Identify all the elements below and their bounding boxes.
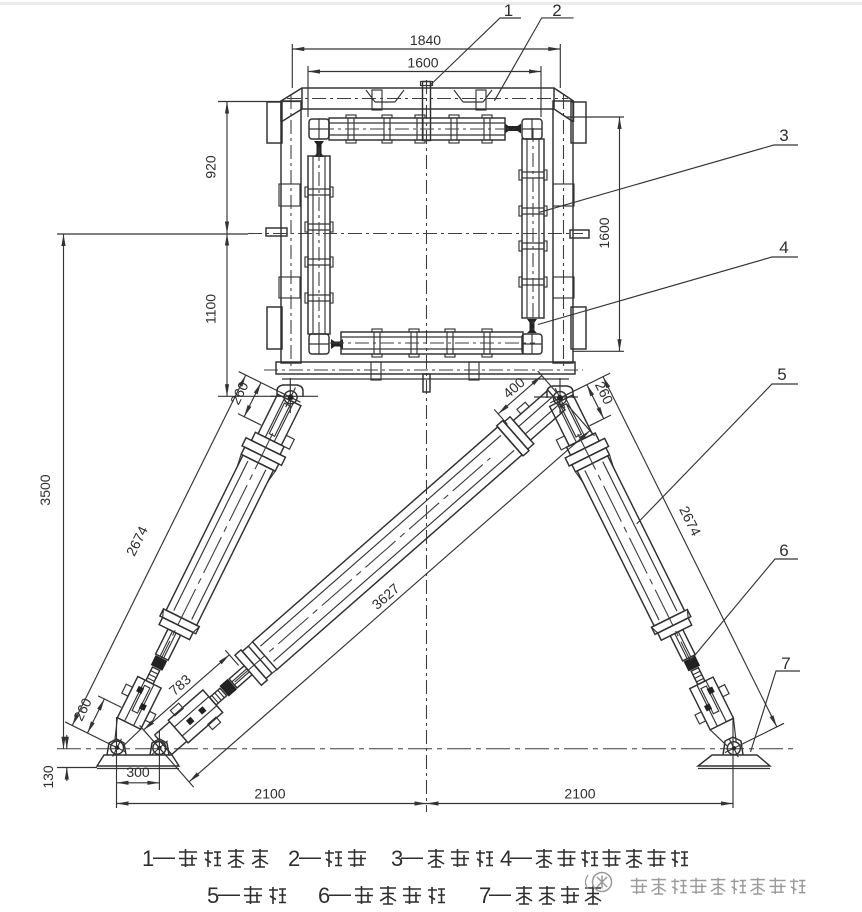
svg-text:3500: 3500 [37,474,53,505]
svg-text:2674: 2674 [123,523,151,558]
svg-text:920: 920 [203,155,219,179]
svg-text:400: 400 [500,374,528,402]
svg-text:—: — [218,881,240,906]
svg-text:2100: 2100 [564,786,595,802]
svg-text:—: — [489,881,511,906]
svg-text:—: — [329,881,351,906]
svg-text:6: 6 [779,541,788,560]
svg-text:260: 260 [70,695,95,723]
svg-text:1600: 1600 [596,217,612,248]
svg-text:—: — [299,844,321,869]
svg-text:1100: 1100 [203,294,219,324]
svg-text:7: 7 [781,654,790,673]
svg-text:260: 260 [227,379,252,407]
svg-text:1: 1 [504,1,513,20]
svg-text:—: — [510,844,532,869]
svg-text:1600: 1600 [407,55,438,71]
svg-text:—: — [153,844,175,869]
svg-text:3: 3 [779,126,788,145]
svg-text:783: 783 [166,671,194,699]
svg-text:300: 300 [126,764,150,780]
svg-text:5: 5 [777,365,786,384]
svg-text:130: 130 [40,765,56,789]
svg-text:2100: 2100 [254,786,285,802]
svg-text:4: 4 [779,238,788,257]
svg-text:1840: 1840 [410,32,441,48]
svg-text:2: 2 [552,1,561,20]
svg-text:—: — [401,844,423,869]
